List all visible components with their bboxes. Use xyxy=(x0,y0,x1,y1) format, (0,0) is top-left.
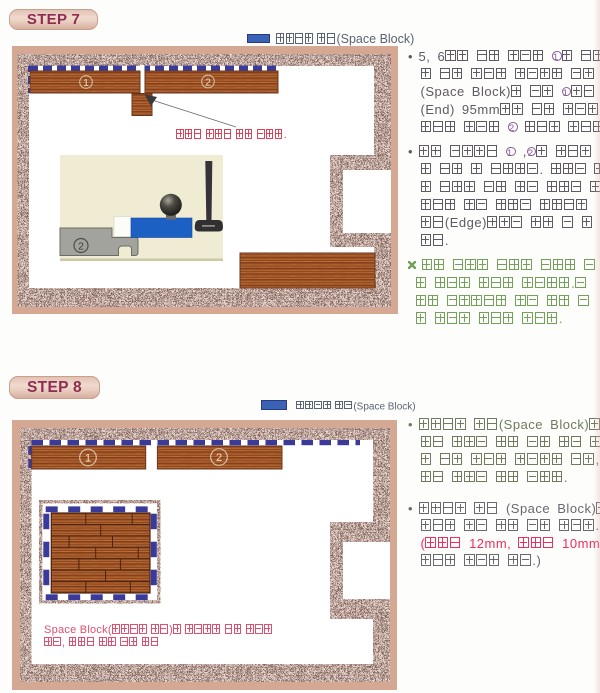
svg-text:2: 2 xyxy=(216,452,222,464)
svg-text:1: 1 xyxy=(85,453,91,465)
svg-text:1: 1 xyxy=(83,78,89,89)
svg-text:2: 2 xyxy=(205,77,211,88)
svg-text:2: 2 xyxy=(78,241,84,253)
